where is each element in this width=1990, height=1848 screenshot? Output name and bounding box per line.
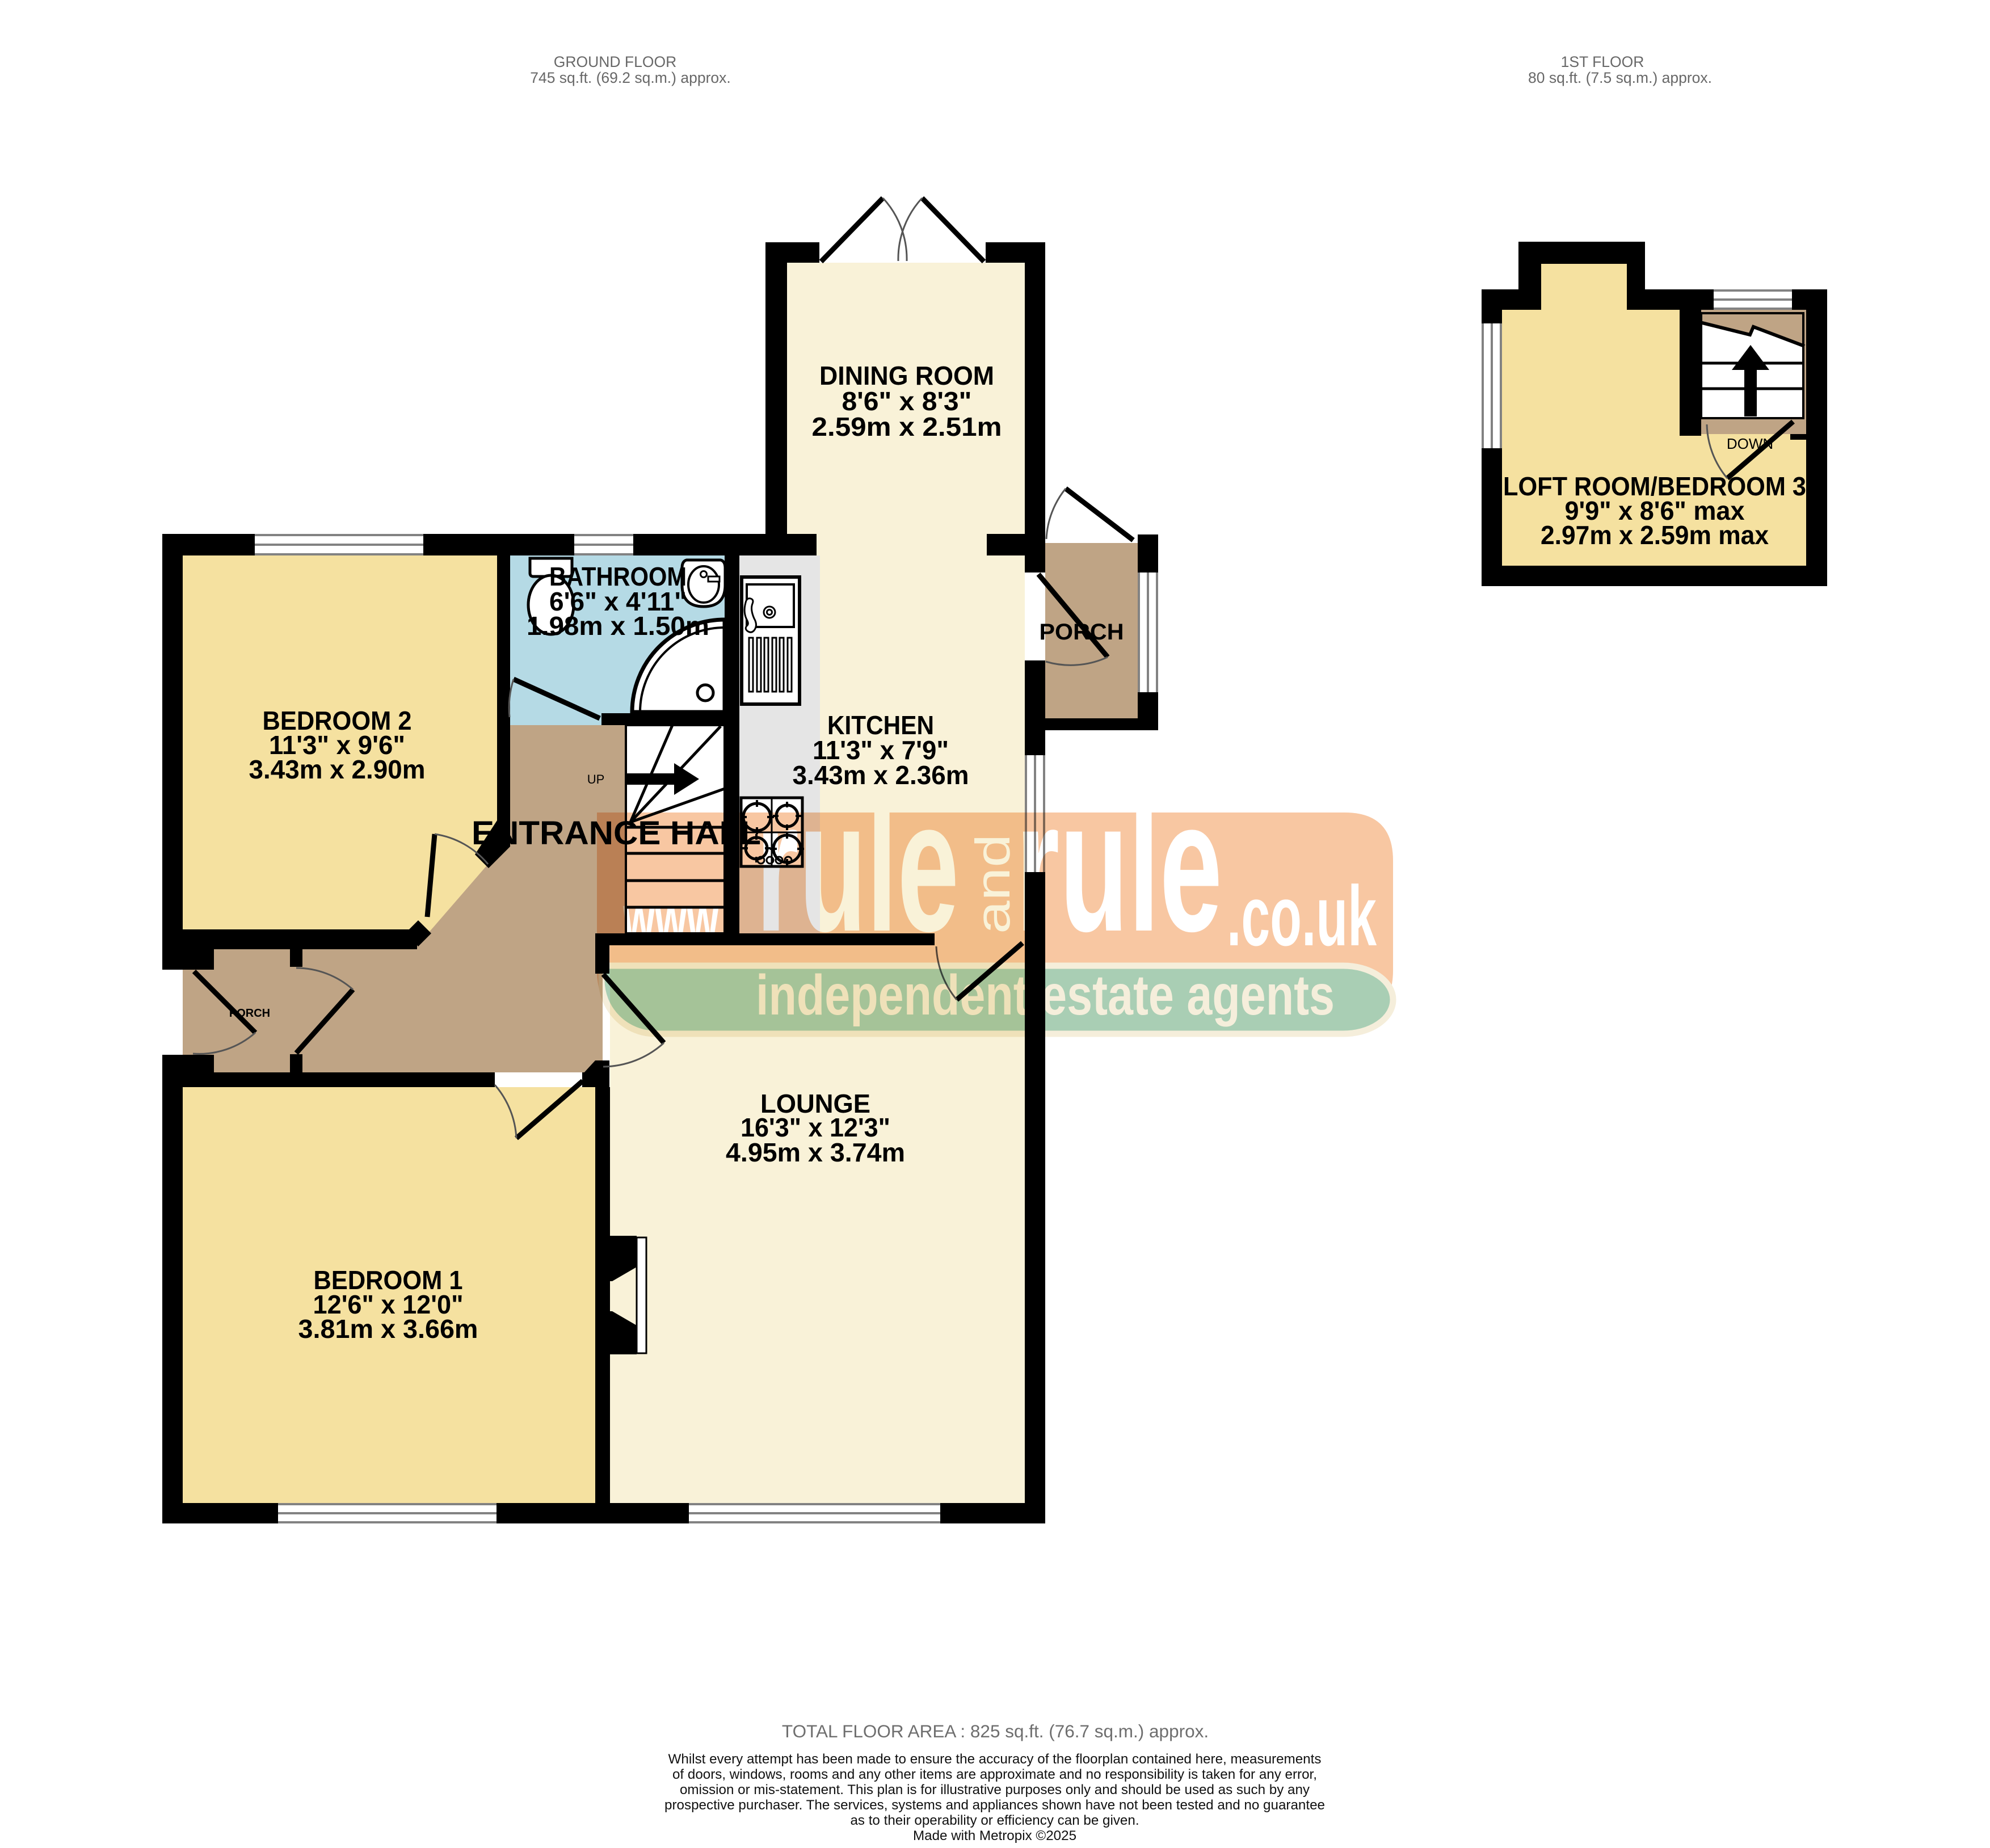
svg-text:www.: www. [622,880,729,957]
svg-text:independent estate agents: independent estate agents [756,963,1335,1027]
svg-text:4.95m x 3.74m: 4.95m x 3.74m [726,1138,905,1167]
svg-text:745 sq.ft. (69.2 sq.m.) approx: 745 sq.ft. (69.2 sq.m.) approx. [530,69,731,86]
svg-text:rule: rule [756,761,959,970]
svg-text:1ST FLOOR: 1ST FLOOR [1561,53,1644,70]
svg-text:2.59m x 2.51m: 2.59m x 2.51m [812,412,1002,441]
svg-text:TOTAL FLOOR AREA : 825 sq.ft.: TOTAL FLOOR AREA : 825 sq.ft. (76.7 sq.m… [782,1721,1209,1741]
svg-text:of doors, windows, rooms and a: of doors, windows, rooms and any other i… [672,1767,1317,1782]
svg-text:2.97m x 2.59m max: 2.97m x 2.59m max [1541,520,1769,550]
svg-text:3.81m x 3.66m: 3.81m x 3.66m [298,1314,478,1344]
svg-text:Made with Metropix ©2025: Made with Metropix ©2025 [913,1828,1076,1843]
svg-text:PORCH: PORCH [229,1007,270,1020]
svg-text:and: and [966,834,1020,934]
svg-text:GROUND FLOOR: GROUND FLOOR [554,53,676,70]
svg-text:3.43m x 2.90m: 3.43m x 2.90m [249,755,426,784]
svg-text:80 sq.ft. (7.5 sq.m.) approx.: 80 sq.ft. (7.5 sq.m.) approx. [1528,69,1712,86]
svg-text:1.98m x 1.50m: 1.98m x 1.50m [527,611,709,641]
svg-text:Whilst every attempt has been: Whilst every attempt has been made to en… [668,1752,1322,1767]
svg-text:rule: rule [1016,761,1222,970]
svg-text:DOWN: DOWN [1727,435,1773,452]
svg-text:.co.uk: .co.uk [1227,868,1377,963]
svg-text:prospective purchaser. The ser: prospective purchaser. The services, sys… [664,1798,1325,1813]
svg-text:as to their operability or eff: as to their operability or efficiency ca… [850,1813,1139,1828]
svg-text:omission or mis-statement. Thi: omission or mis-statement. This plan is … [680,1782,1310,1798]
svg-text:PORCH: PORCH [1040,620,1124,645]
svg-text:UP: UP [587,772,605,786]
